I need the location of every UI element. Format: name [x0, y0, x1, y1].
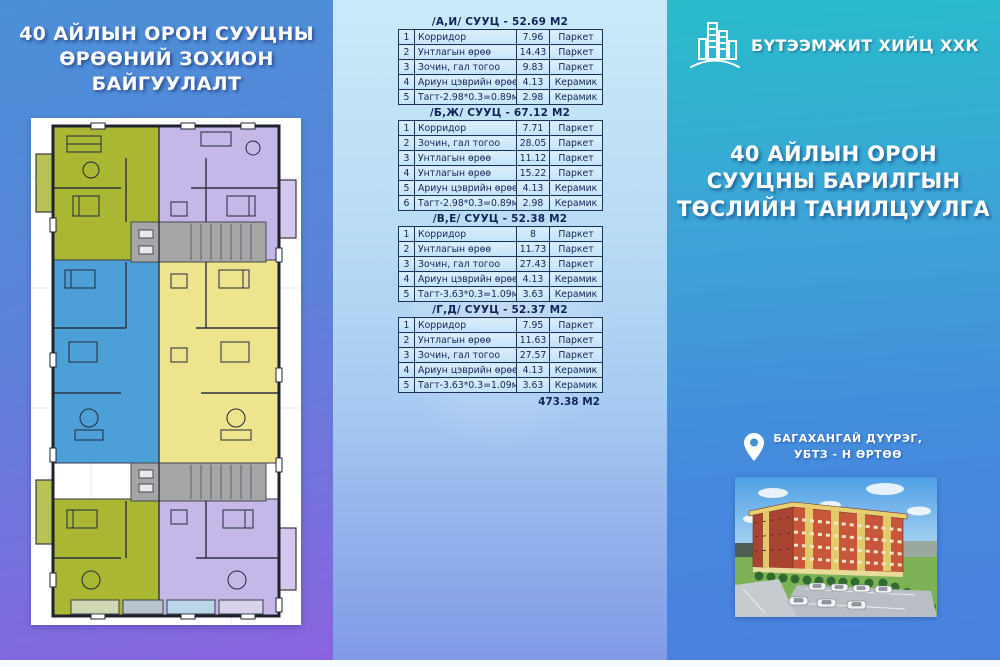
table-cell: Паркет: [550, 30, 603, 45]
table-cell: 4.13: [517, 363, 550, 378]
table-cell: Зочин, гал тогоо: [415, 60, 517, 75]
table-row: 2Унтлагын өрөө14.43Паркет: [399, 45, 603, 60]
table-row: 4Ариун цэврийн өрөө4.13Керамик: [399, 363, 603, 378]
table-cell: 5: [399, 378, 415, 393]
table-cell: Керамик: [550, 363, 603, 378]
table-row: 5Тагт-2.98*0.3=0.89м22.98Керамик: [399, 90, 603, 105]
table-cell: 28.05: [517, 136, 550, 151]
table-cell: Паркет: [550, 348, 603, 363]
table-cell: 27.43: [517, 257, 550, 272]
right-panel: БҮТЭЭМЖИТ ХИЙЦ ХХК 40 АЙЛЫН ОРОН СУУЦНЫ …: [667, 0, 1000, 667]
table-cell: 3.63: [517, 378, 550, 393]
table-cell: 7.96: [517, 30, 550, 45]
table-cell: 5: [399, 287, 415, 302]
table-row: 2Унтлагын өрөө11.63Паркет: [399, 333, 603, 348]
table-cell: 4: [399, 166, 415, 181]
table-cell: 27.57: [517, 348, 550, 363]
table-row: 4Ариун цэврийн өрөө4.13Керамик: [399, 75, 603, 90]
table-cell: 4.13: [517, 181, 550, 196]
table-cell: Зочин, гал тогоо: [415, 136, 517, 151]
table-cell: 3: [399, 348, 415, 363]
table-cell: 3: [399, 257, 415, 272]
table-cell: Ариун цэврийн өрөө: [415, 181, 517, 196]
brochure-page: 40 АЙЛЫН ОРОН СУУЦНЫ ӨРӨӨНИЙ ЗОХИОН БАЙГ…: [0, 0, 1000, 667]
building-render-image: [735, 477, 937, 617]
company-name: БҮТЭЭМЖИТ ХИЙЦ ХХК: [751, 36, 979, 55]
table-cell: Корридор: [415, 227, 517, 242]
table-cell: Зочин, гал тогоо: [415, 257, 517, 272]
right-panel-title: 40 АЙЛЫН ОРОН СУУЦНЫ БАРИЛГЫН ТӨСЛИЙН ТА…: [675, 141, 992, 223]
unit-table: 1Корридор8Паркет2Унтлагын өрөө11.73Парке…: [398, 226, 603, 302]
table-cell: 4: [399, 272, 415, 287]
table-cell: Унтлагын өрөө: [415, 166, 517, 181]
table-cell: 5: [399, 90, 415, 105]
table-cell: Тагт-2.98*0.3=0.89м2: [415, 196, 517, 211]
table-cell: Керамик: [550, 75, 603, 90]
unit-tables: /А,И/ СУУЦ - 52.69 М21Корридор7.96Паркет…: [398, 14, 602, 408]
table-cell: 1: [399, 318, 415, 333]
table-cell: 11.73: [517, 242, 550, 257]
table-cell: 2: [399, 136, 415, 151]
table-cell: Унтлагын өрөө: [415, 45, 517, 60]
table-cell: Паркет: [550, 227, 603, 242]
table-row: 1Корридор8Паркет: [399, 227, 603, 242]
unit-table-title: /Г,Д/ СУУЦ - 52.37 М2: [398, 304, 602, 316]
table-cell: Тагт-3.63*0.3=1.09м2: [415, 287, 517, 302]
building-render-drawing: [735, 477, 937, 617]
table-row: 5Ариун цэврийн өрөө4.13Керамик: [399, 181, 603, 196]
table-cell: 1: [399, 227, 415, 242]
table-row: 6Тагт-2.98*0.3=0.89м22.98Керамик: [399, 196, 603, 211]
table-cell: 1: [399, 30, 415, 45]
table-cell: Унтлагын өрөө: [415, 333, 517, 348]
table-row: 3Зочин, гал тогоо9.83Паркет: [399, 60, 603, 75]
table-cell: 3: [399, 151, 415, 166]
floor-plan-image: [31, 118, 301, 625]
table-cell: 6: [399, 196, 415, 211]
unit-table-title: /А,И/ СУУЦ - 52.69 М2: [398, 16, 602, 28]
table-cell: 2.98: [517, 90, 550, 105]
table-cell: 2: [399, 333, 415, 348]
table-row: 4Ариун цэврийн өрөө4.13Керамик: [399, 272, 603, 287]
table-cell: Керамик: [550, 181, 603, 196]
table-cell: 4.13: [517, 272, 550, 287]
table-cell: Ариун цэврийн өрөө: [415, 272, 517, 287]
left-panel: 40 АЙЛЫН ОРОН СУУЦНЫ ӨРӨӨНИЙ ЗОХИОН БАЙГ…: [0, 0, 333, 667]
table-cell: Паркет: [550, 45, 603, 60]
table-cell: 7.95: [517, 318, 550, 333]
table-cell: 11.63: [517, 333, 550, 348]
table-row: 2Унтлагын өрөө11.73Паркет: [399, 242, 603, 257]
table-cell: Керамик: [550, 90, 603, 105]
table-row: 3Зочин, гал тогоо27.43Паркет: [399, 257, 603, 272]
table-cell: 4: [399, 363, 415, 378]
table-cell: Паркет: [550, 151, 603, 166]
location-pin-icon: [744, 433, 764, 461]
floor-plan-drawing: [31, 118, 301, 625]
unit-table: 1Корридор7.95Паркет2Унтлагын өрөө11.63Па…: [398, 317, 603, 393]
table-cell: Паркет: [550, 121, 603, 136]
table-cell: 2: [399, 45, 415, 60]
unit-table-title: /В,Е/ СУУЦ - 52.38 М2: [398, 213, 602, 225]
table-row: 3Унтлагын өрөө11.12Паркет: [399, 151, 603, 166]
company-logo-icon: [688, 17, 742, 73]
table-cell: Паркет: [550, 333, 603, 348]
left-panel-title: 40 АЙЛЫН ОРОН СУУЦНЫ ӨРӨӨНИЙ ЗОХИОН БАЙГ…: [10, 22, 323, 97]
unit-table: 1Корридор7.71Паркет2Зочин, гал тогоо28.0…: [398, 120, 603, 211]
table-cell: 3: [399, 60, 415, 75]
table-cell: 1: [399, 121, 415, 136]
table-cell: Керамик: [550, 196, 603, 211]
table-cell: 4.13: [517, 75, 550, 90]
table-cell: Паркет: [550, 242, 603, 257]
table-cell: Паркет: [550, 166, 603, 181]
table-row: 4Унтлагын өрөө15.22Паркет: [399, 166, 603, 181]
location-text: БАГАХАНГАЙ ДҮҮРЭГ, УБТЗ - Н ӨРТӨӨ: [773, 431, 922, 463]
table-cell: 4: [399, 75, 415, 90]
table-row: 2Зочин, гал тогоо28.05Паркет: [399, 136, 603, 151]
table-cell: 3.63: [517, 287, 550, 302]
table-cell: Ариун цэврийн өрөө: [415, 75, 517, 90]
table-cell: 11.12: [517, 151, 550, 166]
bottom-white-strip: [0, 660, 1000, 667]
table-cell: Керамик: [550, 287, 603, 302]
table-cell: Паркет: [550, 257, 603, 272]
table-cell: Унтлагын өрөө: [415, 151, 517, 166]
table-cell: 5: [399, 181, 415, 196]
table-cell: 14.43: [517, 45, 550, 60]
table-cell: Тагт-2.98*0.3=0.89м2: [415, 90, 517, 105]
unit-table: 1Корридор7.96Паркет2Унтлагын өрөө14.43Па…: [398, 29, 603, 105]
table-row: 5Тагт-3.63*0.3=1.09м23.63Керамик: [399, 287, 603, 302]
table-row: 1Корридор7.96Паркет: [399, 30, 603, 45]
location-block: БАГАХАНГАЙ ДҮҮРЭГ, УБТЗ - Н ӨРТӨӨ: [667, 431, 1000, 463]
table-cell: Керамик: [550, 378, 603, 393]
table-row: 5Тагт-3.63*0.3=1.09м23.63Керамик: [399, 378, 603, 393]
company-header: БҮТЭЭМЖИТ ХИЙЦ ХХК: [667, 17, 1000, 73]
table-cell: Унтлагын өрөө: [415, 242, 517, 257]
table-row: 1Корридор7.71Паркет: [399, 121, 603, 136]
table-row: 3Зочин, гал тогоо27.57Паркет: [399, 348, 603, 363]
table-cell: 9.83: [517, 60, 550, 75]
table-cell: Корридор: [415, 121, 517, 136]
table-cell: Корридор: [415, 318, 517, 333]
table-cell: Паркет: [550, 318, 603, 333]
table-cell: Ариун цэврийн өрөө: [415, 363, 517, 378]
table-cell: Корридор: [415, 30, 517, 45]
total-area-label: 473.38 М2: [398, 393, 602, 408]
table-cell: 8: [517, 227, 550, 242]
table-row: 1Корридор7.95Паркет: [399, 318, 603, 333]
table-cell: Паркет: [550, 136, 603, 151]
table-cell: Керамик: [550, 272, 603, 287]
table-cell: 7.71: [517, 121, 550, 136]
table-cell: Тагт-3.63*0.3=1.09м2: [415, 378, 517, 393]
table-cell: 15.22: [517, 166, 550, 181]
table-cell: Паркет: [550, 60, 603, 75]
table-cell: 2: [399, 242, 415, 257]
unit-table-title: /Б,Ж/ СУУЦ - 67.12 М2: [398, 107, 602, 119]
middle-panel: /А,И/ СУУЦ - 52.69 М21Корридор7.96Паркет…: [333, 0, 667, 667]
table-cell: 2.98: [517, 196, 550, 211]
table-cell: Зочин, гал тогоо: [415, 348, 517, 363]
